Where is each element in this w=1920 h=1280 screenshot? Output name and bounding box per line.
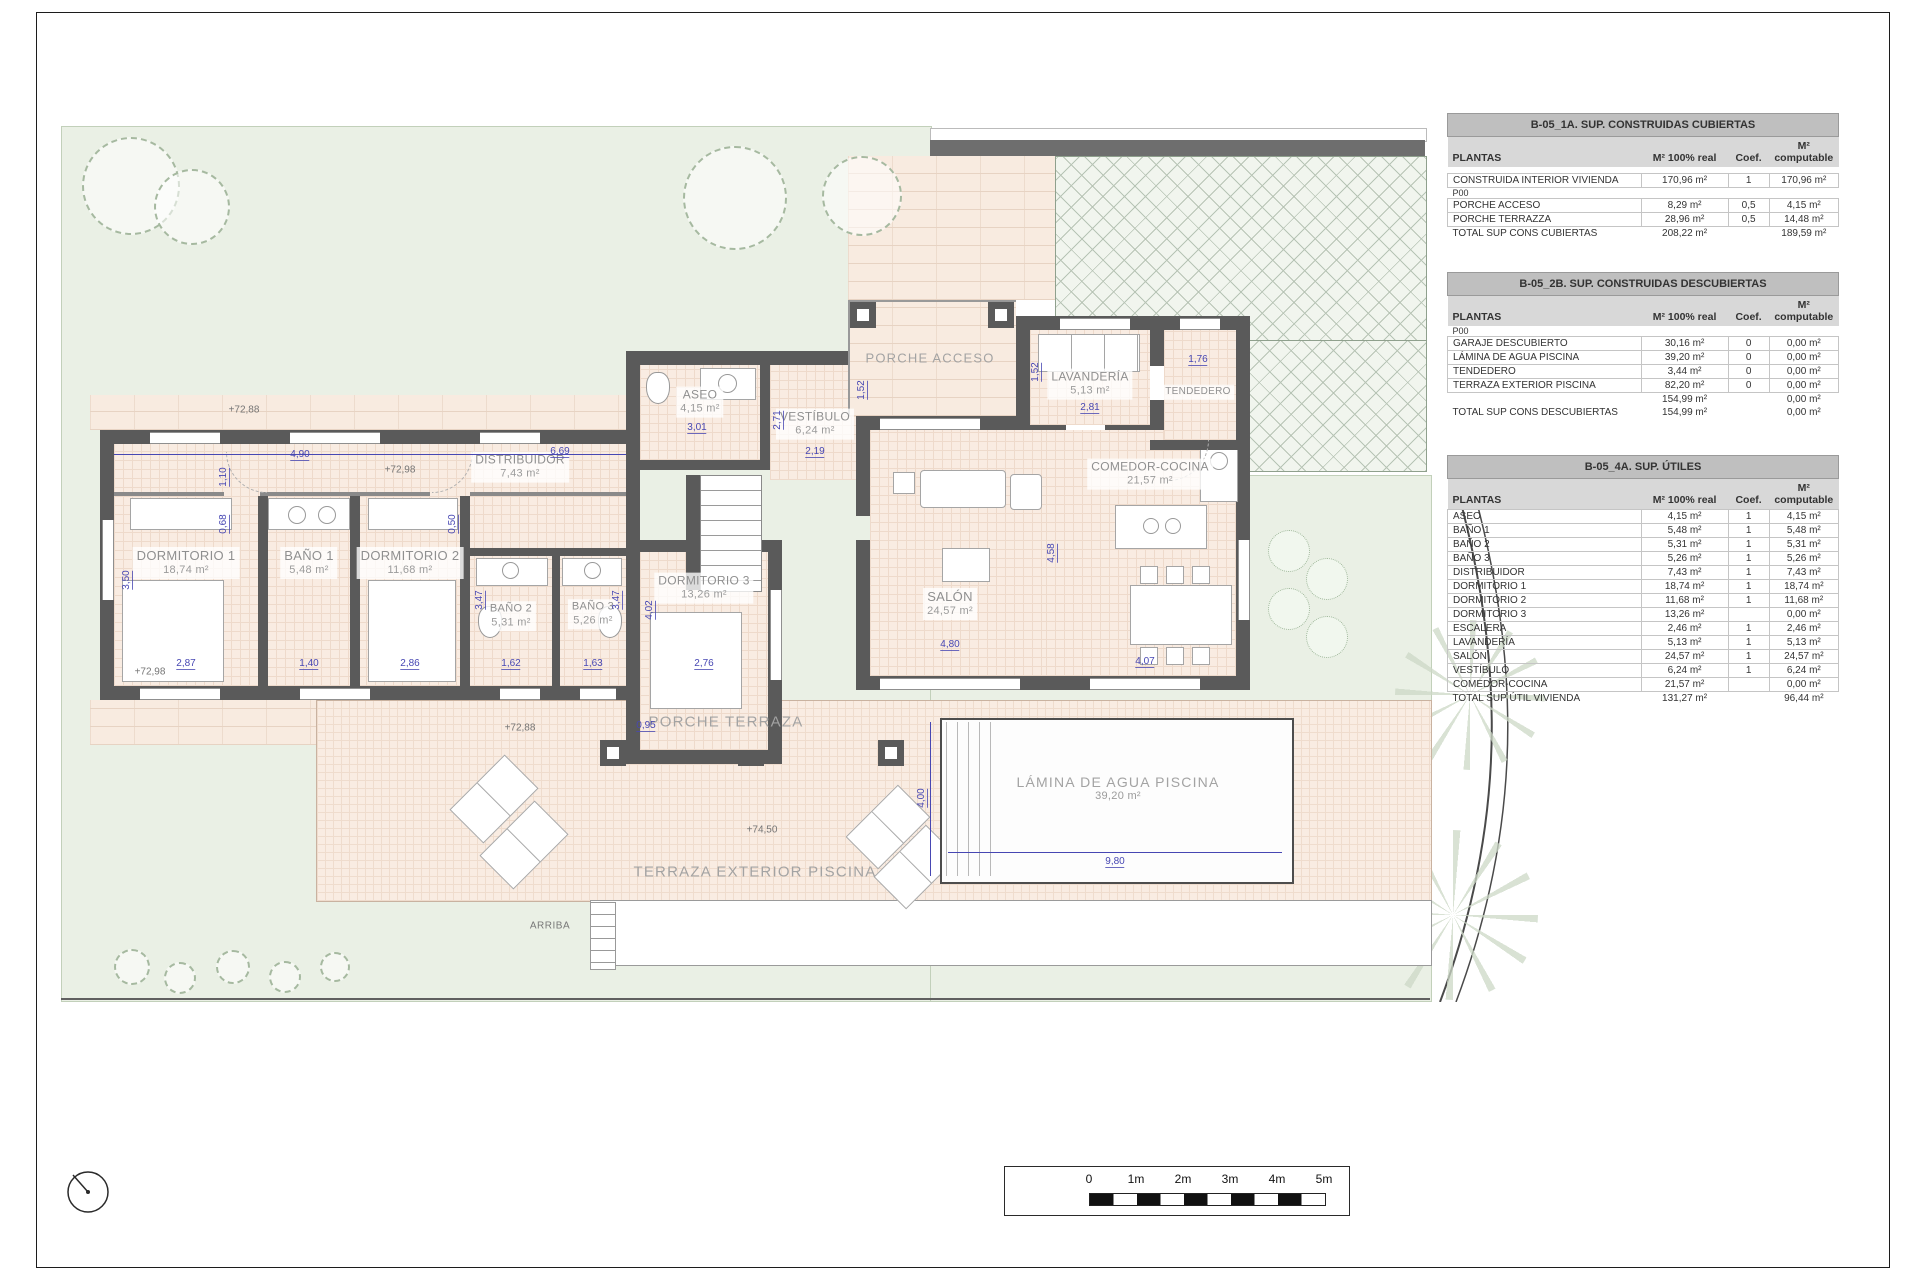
table-cell	[1728, 188, 1769, 199]
table-cell: 0,00 m²	[1769, 365, 1838, 379]
table-sup-construidas-cubiertas: B-05_1A. SUP. CONSTRUIDAS CUBIERTASPLANT…	[1447, 113, 1839, 240]
table-cell: 1	[1728, 566, 1769, 580]
tree-icon	[164, 962, 196, 994]
table-row: GARAJE DESCUBIERTO30,16 m²00,00 m²	[1448, 337, 1839, 351]
room-name: BAÑO 3	[572, 600, 614, 612]
table-cell	[1728, 393, 1769, 407]
window	[880, 418, 980, 430]
table-cell: GARAJE DESCUBIERTO	[1448, 337, 1642, 351]
dim-label: 0,68	[218, 514, 230, 533]
window	[1060, 318, 1130, 330]
table-cell: 1	[1728, 580, 1769, 594]
table-cell: BAÑO 1	[1448, 524, 1642, 538]
hob-burner	[1165, 518, 1181, 534]
table-cell: 5,13 m²	[1641, 636, 1728, 650]
arriba-label: ARRIBA	[530, 921, 570, 932]
table-cell: 8,29 m²	[1641, 199, 1728, 213]
wall-segment	[1016, 316, 1030, 416]
room-name: DORMITORIO 1	[137, 548, 236, 563]
table-cell: 30,16 m²	[1641, 337, 1728, 351]
room-label-salon: SALÓN24,57 m²	[923, 588, 977, 620]
table-cell: 0,00 m²	[1769, 406, 1838, 419]
dim-label: 3,47	[611, 590, 623, 609]
level-label: +72,88	[229, 405, 260, 416]
table-cell	[1728, 227, 1769, 241]
table-cell: 189,59 m²	[1769, 227, 1838, 241]
dim-label: 4,02	[644, 600, 656, 619]
dim-label: 1,76	[1188, 354, 1207, 366]
table-cell: TOTAL SUP ÚTIL VIVIENDA	[1448, 692, 1642, 706]
table-row: BAÑO 35,26 m²15,26 m²	[1448, 552, 1839, 566]
level-label: +72,88	[505, 723, 536, 734]
zone-area: 39,20 m²	[1016, 790, 1219, 802]
dim-label: 2,86	[400, 658, 419, 670]
data-table: PLANTASM² 100% realCoef.M² computableCON…	[1447, 137, 1839, 240]
table-cell: BAÑO 3	[1448, 552, 1642, 566]
table-cell: 1	[1728, 622, 1769, 636]
scale-tick-label: 3m	[1222, 1172, 1239, 1186]
scale-tick-label: 0	[1086, 1172, 1093, 1186]
zone-name: LÁMINA DE AGUA PISCINA	[1016, 774, 1219, 790]
table-header-cell: Coef.	[1728, 296, 1769, 326]
zone-label-porche-terraza: PORCHE TERRAZA	[649, 714, 804, 731]
table-cell: 0,00 m²	[1769, 351, 1838, 365]
table-cell	[1728, 326, 1769, 337]
table-cell: 14,48 m²	[1769, 213, 1838, 227]
wall-segment	[626, 351, 870, 365]
zone-label-lamina-piscina: LÁMINA DE AGUA PISCINA39,20 m²	[1016, 774, 1219, 802]
room-name: ASEO	[683, 388, 718, 402]
shrub-icon	[1306, 558, 1348, 600]
table-cell: 18,74 m²	[1641, 580, 1728, 594]
table-cell: 154,99 m²	[1641, 406, 1728, 419]
table-cell: 6,24 m²	[1641, 664, 1728, 678]
table-cell: 28,96 m²	[1641, 213, 1728, 227]
table-cell	[1448, 393, 1642, 407]
table-cell: 0,00 m²	[1769, 379, 1838, 393]
table-cell: PORCHE TERRAZZA	[1448, 213, 1642, 227]
window	[770, 590, 782, 680]
site-bottom-line	[61, 998, 1430, 1000]
dim-label: 2,19	[805, 446, 824, 458]
table-cell	[1769, 326, 1838, 337]
room-area: 13,26 m²	[658, 589, 749, 603]
dim-label: 0,50	[447, 514, 459, 533]
dim-label: 2,87	[176, 658, 195, 670]
window	[1238, 540, 1250, 620]
table-cell: 0	[1728, 379, 1769, 393]
table-cell: 1	[1728, 524, 1769, 538]
scale-bar-strip	[1089, 1193, 1326, 1206]
room-area: 4,15 m²	[680, 403, 719, 417]
room-label-bano1: BAÑO 15,48 m²	[280, 547, 337, 579]
table-cell: 131,27 m²	[1641, 692, 1728, 706]
table-cell: 24,57 m²	[1641, 650, 1728, 664]
dining-chair	[1192, 566, 1210, 584]
table-sup-utiles: B-05_4A. SUP. ÚTILESPLANTASM² 100% realC…	[1447, 455, 1839, 705]
table-row: DISTRIBUIDOR7,43 m²17,43 m²	[1448, 566, 1839, 580]
window	[580, 688, 616, 700]
table-cell: 96,44 m²	[1769, 692, 1838, 706]
table-cell: 5,31 m²	[1769, 538, 1838, 552]
porch-pillar	[850, 302, 876, 328]
table-row: VESTÍBULO6,24 m²16,24 m²	[1448, 664, 1839, 678]
table-cell: TERRAZA EXTERIOR PISCINA	[1448, 379, 1642, 393]
table-cell: 5,48 m²	[1641, 524, 1728, 538]
table-cell: 0,00 m²	[1769, 608, 1838, 622]
pool-surround-band	[590, 900, 1432, 966]
room-area: 5,13 m²	[1051, 385, 1128, 399]
table-row: BAÑO 15,48 m²15,48 m²	[1448, 524, 1839, 538]
room-name: VESTÍBULO	[780, 410, 850, 424]
table-cell	[1769, 188, 1838, 199]
table-header-cell: M² 100% real	[1641, 296, 1728, 326]
table-row: TENDEDERO3,44 m²00,00 m²	[1448, 365, 1839, 379]
table-row: COMEDOR-COCINA21,57 m²0,00 m²	[1448, 678, 1839, 692]
dining-chair	[1166, 566, 1184, 584]
kitchen-island	[1115, 505, 1207, 549]
table-cell: 13,26 m²	[1641, 608, 1728, 622]
toilet	[646, 372, 670, 404]
room-name: COMEDOR-COCINA	[1091, 460, 1209, 474]
room-area: 6,24 m²	[780, 425, 850, 439]
table-cell: 0	[1728, 351, 1769, 365]
dim-label: 9,80	[1105, 856, 1124, 868]
garden-stairs	[590, 902, 616, 970]
dim-label: 1,52	[856, 380, 868, 399]
dim-line	[114, 454, 626, 455]
wall-segment	[626, 351, 640, 430]
hob-burner	[1143, 518, 1159, 534]
window	[140, 688, 220, 700]
room-name: DORMITORIO 2	[361, 548, 460, 563]
table-cell: LAVANDERÍA	[1448, 636, 1642, 650]
dim-label: 4,58	[1046, 543, 1058, 562]
shrub-icon	[1306, 616, 1348, 658]
armchair	[1010, 474, 1042, 510]
terrace-pillar	[600, 740, 626, 766]
room-name: DORMITORIO 3	[658, 574, 749, 588]
table-cell: 18,74 m²	[1769, 580, 1838, 594]
room-name: LAVANDERÍA	[1051, 370, 1128, 384]
dim-label: 2,81	[1080, 402, 1099, 414]
wall-segment	[1150, 400, 1164, 430]
table-cell	[1728, 678, 1769, 692]
drawing-sheet: DORMITORIO 118,74 m² BAÑO 15,48 m² DORMI…	[0, 0, 1920, 1280]
dim-label: 4,00	[916, 788, 928, 807]
dim-label: 3,50	[121, 570, 133, 589]
table-cell: 11,68 m²	[1769, 594, 1838, 608]
scale-tick-label: 2m	[1175, 1172, 1192, 1186]
washbasin	[288, 506, 306, 524]
table-cell: 0	[1728, 365, 1769, 379]
garaje-descubierto-area	[1055, 156, 1427, 342]
scale-tick-label: 5m	[1316, 1172, 1333, 1186]
table-header-cell: M² 100% real	[1641, 479, 1728, 510]
garaje-descubierto-area	[1240, 340, 1427, 472]
partition-wall	[460, 496, 470, 686]
table-cell: 1	[1728, 510, 1769, 524]
window	[150, 432, 220, 444]
room-area: 11,68 m²	[361, 564, 460, 578]
zone-label-terraza-exterior: TERRAZA EXTERIOR PISCINA	[633, 864, 876, 881]
table-cell: 2,46 m²	[1641, 622, 1728, 636]
window	[1180, 318, 1220, 330]
dining-chair	[1166, 647, 1184, 665]
table-cell	[1728, 692, 1769, 706]
table-cell: 208,22 m²	[1641, 227, 1728, 241]
table-row: LÁMINA DE AGUA PISCINA39,20 m²00,00 m²	[1448, 351, 1839, 365]
dim-label: 1,10	[218, 467, 230, 486]
sofa	[920, 470, 1006, 508]
table-cell	[1641, 326, 1728, 337]
table-row: BAÑO 25,31 m²15,31 m²	[1448, 538, 1839, 552]
table-cell: 1	[1728, 636, 1769, 650]
table-row: SALÓN24,57 m²124,57 m²	[1448, 650, 1839, 664]
table-cell: 7,43 m²	[1769, 566, 1838, 580]
terrace-pillar	[878, 740, 904, 766]
dim-label: 4,07	[1135, 656, 1154, 668]
dim-label: 0,95	[636, 720, 655, 732]
table-cell: 0,00 m²	[1769, 393, 1838, 407]
closet	[130, 498, 232, 530]
table-cell: 39,20 m²	[1641, 351, 1728, 365]
table-title: B-05_2B. SUP. CONSTRUIDAS DESCUBIERTAS	[1447, 272, 1839, 296]
corridor-wall	[470, 492, 626, 496]
table-cell: 154,99 m²	[1641, 393, 1728, 407]
table-cell: 1	[1728, 664, 1769, 678]
table-row: P00	[1448, 188, 1839, 199]
partition-wall	[470, 548, 626, 556]
table-sup-construidas-descubiertas: B-05_2B. SUP. CONSTRUIDAS DESCUBIERTASPL…	[1447, 272, 1839, 419]
table-row: DORMITORIO 211,68 m²111,68 m²	[1448, 594, 1839, 608]
dim-label: 2,71	[772, 410, 784, 429]
washer-counter	[1038, 334, 1140, 372]
table-cell: 0,5	[1728, 199, 1769, 213]
table-header-cell: Coef.	[1728, 137, 1769, 167]
table-title: B-05_4A. SUP. ÚTILES	[1447, 455, 1839, 479]
table-header-cell: M² computable	[1769, 479, 1838, 510]
corridor-wall	[114, 492, 224, 496]
tree-icon	[320, 952, 350, 982]
room-area: 5,48 m²	[284, 564, 333, 578]
table-cell: 7,43 m²	[1641, 566, 1728, 580]
table-cell: CONSTRUIDA INTERIOR VIVIENDA	[1448, 174, 1642, 188]
table-cell	[1641, 188, 1728, 199]
dim-line	[948, 852, 1282, 853]
porch-pillar	[988, 302, 1014, 328]
room-area: 21,57 m²	[1091, 475, 1209, 489]
room-label-comedor: COMEDOR-COCINA21,57 m²	[1087, 459, 1213, 490]
table-cell: 1	[1728, 538, 1769, 552]
table-cell	[1728, 608, 1769, 622]
table-cell: TOTAL SUP CONS DESCUBIERTAS	[1448, 406, 1642, 419]
table-header-cell: M² 100% real	[1641, 137, 1728, 167]
window	[1090, 678, 1200, 690]
level-label: +74,50	[747, 825, 778, 836]
partition-wall	[552, 556, 560, 686]
wall-segment	[856, 416, 870, 480]
wall-segment	[1150, 316, 1164, 366]
table-cell: DORMITORIO 1	[1448, 580, 1642, 594]
room-label-lavanderia: LAVANDERÍA5,13 m²	[1047, 369, 1132, 400]
table-cell: 5,31 m²	[1641, 538, 1728, 552]
washbasin	[584, 562, 601, 579]
data-table: PLANTASM² 100% realCoef.M² computableASE…	[1447, 479, 1839, 705]
table-row: PORCHE ACCESO8,29 m²0,54,15 m²	[1448, 199, 1839, 213]
wall-segment	[626, 750, 782, 764]
table-row: P00	[1448, 326, 1839, 337]
partition-wall	[350, 496, 360, 686]
table-cell: 5,48 m²	[1769, 524, 1838, 538]
table-cell: P00	[1448, 188, 1642, 199]
dim-label: 4,80	[940, 639, 959, 651]
dim-label: 1,52	[1030, 362, 1042, 381]
table-cell: 0	[1728, 337, 1769, 351]
table-cell: 11,68 m²	[1641, 594, 1728, 608]
room-area: 24,57 m²	[927, 605, 973, 619]
room-name: TENDEDERO	[1165, 386, 1230, 397]
washbasin	[502, 562, 519, 579]
room-area: 5,26 m²	[572, 614, 614, 628]
wall-segment	[626, 430, 640, 764]
closet	[368, 498, 458, 530]
room-label-dormitorio1: DORMITORIO 118,74 m²	[133, 547, 240, 579]
table-cell: DISTRIBUIDOR	[1448, 566, 1642, 580]
table-cell: 1	[1728, 594, 1769, 608]
wall-segment	[856, 540, 870, 690]
scale-tick-label: 1m	[1128, 1172, 1145, 1186]
shrub-icon	[1268, 588, 1310, 630]
window	[300, 688, 370, 700]
walkway-paving	[90, 395, 630, 430]
scale-bar: 0 1m 2m 3m 4m 5m	[1004, 1166, 1350, 1216]
table-cell: 5,13 m²	[1769, 636, 1838, 650]
table-cell: 4,15 m²	[1641, 510, 1728, 524]
table-cell: 1	[1728, 650, 1769, 664]
dim-label: 1,63	[583, 658, 602, 670]
table-row: TOTAL SUP ÚTIL VIVIENDA131,27 m²96,44 m²	[1448, 692, 1839, 706]
table-cell: 0,00 m²	[1769, 678, 1838, 692]
table-row: ESCALERA2,46 m²12,46 m²	[1448, 622, 1839, 636]
wall-segment	[626, 460, 770, 470]
corridor-wall	[260, 492, 430, 496]
level-label: +72,98	[385, 465, 416, 476]
table-cell: P00	[1448, 326, 1642, 337]
table-header-cell: M² computable	[1769, 137, 1838, 167]
boundary-wall	[930, 140, 1425, 156]
table-cell: 4,15 m²	[1769, 510, 1838, 524]
room-label-aseo: ASEO4,15 m²	[676, 387, 723, 418]
table-title: B-05_1A. SUP. CONSTRUIDAS CUBIERTAS	[1447, 113, 1839, 137]
table-row: LAVANDERÍA5,13 m²15,13 m²	[1448, 636, 1839, 650]
table-cell: 1	[1728, 552, 1769, 566]
table-header-cell: PLANTAS	[1448, 479, 1642, 510]
washbasin	[318, 506, 336, 524]
table-cell: TOTAL SUP CONS CUBIERTAS	[1448, 227, 1642, 241]
tree-icon	[154, 169, 230, 245]
tree-icon	[114, 949, 150, 985]
room-label-dormitorio2: DORMITORIO 211,68 m²	[357, 547, 464, 579]
window	[290, 432, 380, 444]
table-cell: 24,57 m²	[1769, 650, 1838, 664]
level-label: +72,98	[135, 667, 166, 678]
table-row: DORMITORIO 313,26 m²0,00 m²	[1448, 608, 1839, 622]
table-row: 154,99 m²0,00 m²	[1448, 393, 1839, 407]
window	[880, 678, 1020, 690]
window	[480, 432, 540, 444]
table-cell: DORMITORIO 2	[1448, 594, 1642, 608]
table-cell: 5,26 m²	[1641, 552, 1728, 566]
dim-label: 2,76	[694, 658, 713, 670]
table-cell: 3,44 m²	[1641, 365, 1728, 379]
table-row: PORCHE TERRAZZA28,96 m²0,514,48 m²	[1448, 213, 1839, 227]
table-cell: LÁMINA DE AGUA PISCINA	[1448, 351, 1642, 365]
table-cell: 4,15 m²	[1769, 199, 1838, 213]
tree-icon	[822, 156, 902, 236]
dining-chair	[1140, 566, 1158, 584]
table-cell: 1	[1728, 174, 1769, 188]
dim-label: 1,62	[501, 658, 520, 670]
dim-label: 3,47	[474, 590, 486, 609]
table-cell: 6,24 m²	[1769, 664, 1838, 678]
dim-label: 3,01	[687, 422, 706, 434]
room-name: BAÑO 1	[284, 548, 333, 563]
table-row: DORMITORIO 118,74 m²118,74 m²	[1448, 580, 1839, 594]
bath-vanity	[268, 498, 350, 530]
room-name: BAÑO 2	[490, 602, 532, 614]
window	[500, 688, 540, 700]
table-row: CONSTRUIDA INTERIOR VIVIENDA170,96 m²117…	[1448, 174, 1839, 188]
table-cell: 170,96 m²	[1641, 174, 1728, 188]
table-cell: VESTÍBULO	[1448, 664, 1642, 678]
coffee-table	[942, 548, 990, 582]
window	[102, 520, 114, 600]
table-cell: DORMITORIO 3	[1448, 608, 1642, 622]
wall-segment	[1236, 316, 1250, 440]
room-label-bano2: BAÑO 25,31 m²	[486, 601, 536, 631]
table-cell: 82,20 m²	[1641, 379, 1728, 393]
table-cell: 0,5	[1728, 213, 1769, 227]
table-cell: 2,46 m²	[1769, 622, 1838, 636]
table-row: TOTAL SUP CONS DESCUBIERTAS154,99 m²0,00…	[1448, 406, 1839, 419]
table-row: TERRAZA EXTERIOR PISCINA82,20 m²00,00 m²	[1448, 379, 1839, 393]
room-label-tendedero: TENDEDERO	[1161, 385, 1234, 400]
dim-label: 6,69	[550, 446, 569, 458]
table-cell: ASEO	[1448, 510, 1642, 524]
room-area: 18,74 m²	[137, 564, 236, 578]
tree-icon	[216, 950, 250, 984]
table-cell: BAÑO 2	[1448, 538, 1642, 552]
table-cell: 5,26 m²	[1769, 552, 1838, 566]
scale-tick-label: 4m	[1269, 1172, 1286, 1186]
dining-table	[1130, 585, 1232, 645]
shrub-icon	[1268, 530, 1310, 572]
table-cell: SALÓN	[1448, 650, 1642, 664]
table-cell: TENDEDERO	[1448, 365, 1642, 379]
table-header-cell: PLANTAS	[1448, 296, 1642, 326]
table-cell: 0,00 m²	[1769, 337, 1838, 351]
dining-chair	[1192, 647, 1210, 665]
wall-segment	[760, 351, 770, 460]
table-row: ASEO4,15 m²14,15 m²	[1448, 510, 1839, 524]
table-cell	[1728, 406, 1769, 419]
table-cell: PORCHE ACCESO	[1448, 199, 1642, 213]
room-label-dormitorio3: DORMITORIO 313,26 m²	[654, 573, 753, 604]
side-table	[893, 472, 915, 494]
dim-line	[930, 722, 931, 876]
table-header-row: PLANTASM² 100% realCoef.M² computable	[1448, 479, 1839, 510]
